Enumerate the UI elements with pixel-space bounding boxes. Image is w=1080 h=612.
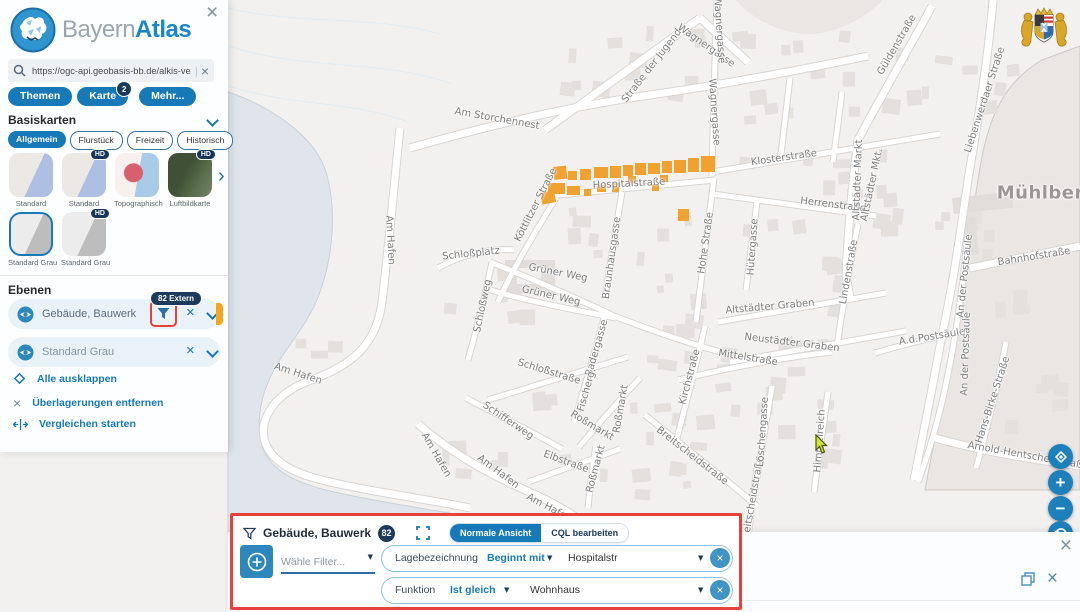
view-toggle: Normale Ansicht CQL bearbeiten [449, 523, 629, 543]
plus-circle-icon [247, 552, 267, 572]
divider [745, 600, 1080, 601]
hd-badge: HD [196, 149, 216, 160]
basemap-thumbs-row2: Standard Grau HD Standard Grau [8, 212, 107, 267]
expand-icon[interactable] [416, 526, 430, 540]
filter-panel-title: Gebäude, Bauwerk [263, 526, 371, 540]
result-count-badge: 82 [378, 525, 395, 542]
search-input[interactable] [30, 65, 192, 77]
tab-karte[interactable]: Karte 2 [77, 87, 128, 106]
chevron-down-icon[interactable] [206, 114, 219, 127]
visibility-eye-icon[interactable] [17, 306, 34, 323]
remove-filter-button[interactable]: × [710, 548, 730, 568]
bayernatlas-app: Straße der JugendWagnergasseWagnergasseW… [0, 0, 1080, 612]
zoom-out-button[interactable]: − [1048, 496, 1073, 521]
basemap-topographisch[interactable]: Topographisch [114, 153, 160, 208]
normal-view-button[interactable]: Normale Ansicht [450, 524, 541, 542]
add-filter-button[interactable] [240, 545, 273, 578]
filter-row-lagebezeichnung: Lagebezeichnung Beginnt mit ▼ Hospitalst… [381, 545, 733, 572]
chip-allgemein[interactable]: Allgemein [8, 131, 66, 148]
action-remove-overlays[interactable]: × Überlagerungen entfernen [13, 395, 163, 411]
basemaps-header: Basiskarten [8, 113, 76, 127]
chip-flurstueck[interactable]: Flurstück [70, 131, 123, 150]
close-icon[interactable]: × [1060, 534, 1072, 558]
basemap-thumbs-row1: Standard HD Standard Topographisch HD Lu… [8, 153, 213, 208]
visibility-eye-icon[interactable] [17, 344, 34, 361]
basemap-standard[interactable]: Standard [8, 153, 54, 208]
expand-all-icon [13, 372, 26, 385]
filter-value-dropdown[interactable]: Wohnhaus [530, 584, 580, 596]
remove-layer-icon[interactable]: × [186, 342, 195, 359]
basemap-standard-grau-selected[interactable]: Standard Grau [8, 212, 54, 267]
choose-filter-placeholder: Wähle Filter... [281, 556, 345, 568]
layer-label: Standard Grau [42, 346, 114, 358]
chip-historisch[interactable]: Historisch [177, 131, 233, 150]
chevron-down-icon[interactable]: ▼ [698, 554, 703, 562]
karte-count-badge: 2 [116, 81, 132, 97]
tab-themen[interactable]: Themen [8, 87, 72, 106]
filter-icon [157, 307, 170, 320]
mouse-cursor [814, 434, 830, 456]
filter-panel: Gebäude, Bauwerk 82 Normale Ansicht CQL … [230, 513, 742, 610]
close-icon: × [13, 395, 21, 411]
bavaria-coat-of-arms [1018, 6, 1070, 52]
cql-edit-button[interactable]: CQL bearbeiten [541, 524, 628, 542]
chevron-down-icon[interactable] [206, 345, 219, 358]
sidebar: × BayernAtlas | × Themen Karte [0, 0, 228, 452]
divider: | [195, 64, 198, 78]
layer-label: Gebäude, Bauwerk [42, 308, 136, 320]
remove-filter-button[interactable]: × [710, 580, 730, 600]
zoom-in-button[interactable]: + [1048, 470, 1073, 495]
extern-count-badge: 82 Extern [150, 291, 202, 306]
duplicate-window-icon[interactable] [1021, 572, 1037, 586]
chevron-down-icon: ▼ [368, 553, 373, 561]
bavaria-logo-icon [10, 7, 56, 53]
filter-value-dropdown[interactable]: Hospitalstr [568, 552, 618, 564]
filter-operator-dropdown[interactable]: Beginnt mit [487, 552, 545, 564]
layer-drag-handle[interactable] [216, 303, 223, 325]
remove-layer-icon[interactable]: × [186, 304, 195, 321]
choose-filter-dropdown[interactable]: Wähle Filter... ▼ [281, 552, 375, 570]
main-tabs: Themen Karte 2 Mehr... [8, 87, 196, 106]
divider [0, 275, 228, 276]
basemap-luftbildkarte[interactable]: HD Luftbildkarte [167, 153, 213, 208]
chip-freizeit[interactable]: Freizeit [127, 131, 173, 150]
more-basemaps-arrow[interactable]: › [218, 165, 225, 188]
action-start-compare[interactable]: Vergleichen starten [13, 418, 136, 430]
filter-row-funktion: Funktion Ist gleich ▼ Wohnhaus ▼ × [381, 577, 733, 604]
geolocate-button[interactable] [1048, 444, 1073, 469]
minus-icon: − [1056, 499, 1066, 519]
locate-icon [1053, 449, 1069, 465]
basemap-standard-grau-hd[interactable]: HD Standard Grau [61, 212, 107, 267]
clear-search-icon[interactable]: × [201, 63, 209, 79]
tab-mehr[interactable]: Mehr... [139, 87, 196, 106]
plus-icon: + [1056, 473, 1066, 493]
filter-icon [243, 527, 256, 540]
layer-gebaeude-bauwerk[interactable]: Gebäude, Bauwerk × 82 Extern [8, 299, 220, 329]
compare-arrows-icon [13, 419, 28, 430]
chevron-down-icon[interactable]: ▼ [698, 586, 703, 594]
hd-badge: HD [90, 149, 110, 160]
chevron-down-icon[interactable]: ▼ [547, 554, 552, 562]
action-expand-all[interactable]: Alle ausklappen [13, 372, 117, 385]
search-bar[interactable]: | × [8, 59, 214, 82]
layer-standard-grau[interactable]: Standard Grau × [8, 337, 220, 367]
close-window-icon[interactable]: × [1047, 568, 1058, 590]
basemap-standard-hd[interactable]: HD Standard [61, 153, 107, 208]
hd-badge: HD [90, 208, 110, 219]
app-logo: BayernAtlas [10, 7, 191, 53]
basemap-category-chips: Allgemein Flurstück Freizeit Historisch [8, 131, 233, 150]
filter-field-label: Funktion [395, 584, 435, 596]
filter-operator-dropdown[interactable]: Ist gleich [450, 584, 496, 596]
search-icon [13, 64, 26, 77]
layers-header: Ebenen [8, 283, 51, 297]
close-icon[interactable]: × [206, 1, 218, 25]
app-title: BayernAtlas [62, 16, 191, 44]
chevron-down-icon[interactable]: ▼ [504, 586, 509, 594]
filter-field-label: Lagebezeichnung [395, 552, 478, 564]
underline [281, 572, 375, 574]
